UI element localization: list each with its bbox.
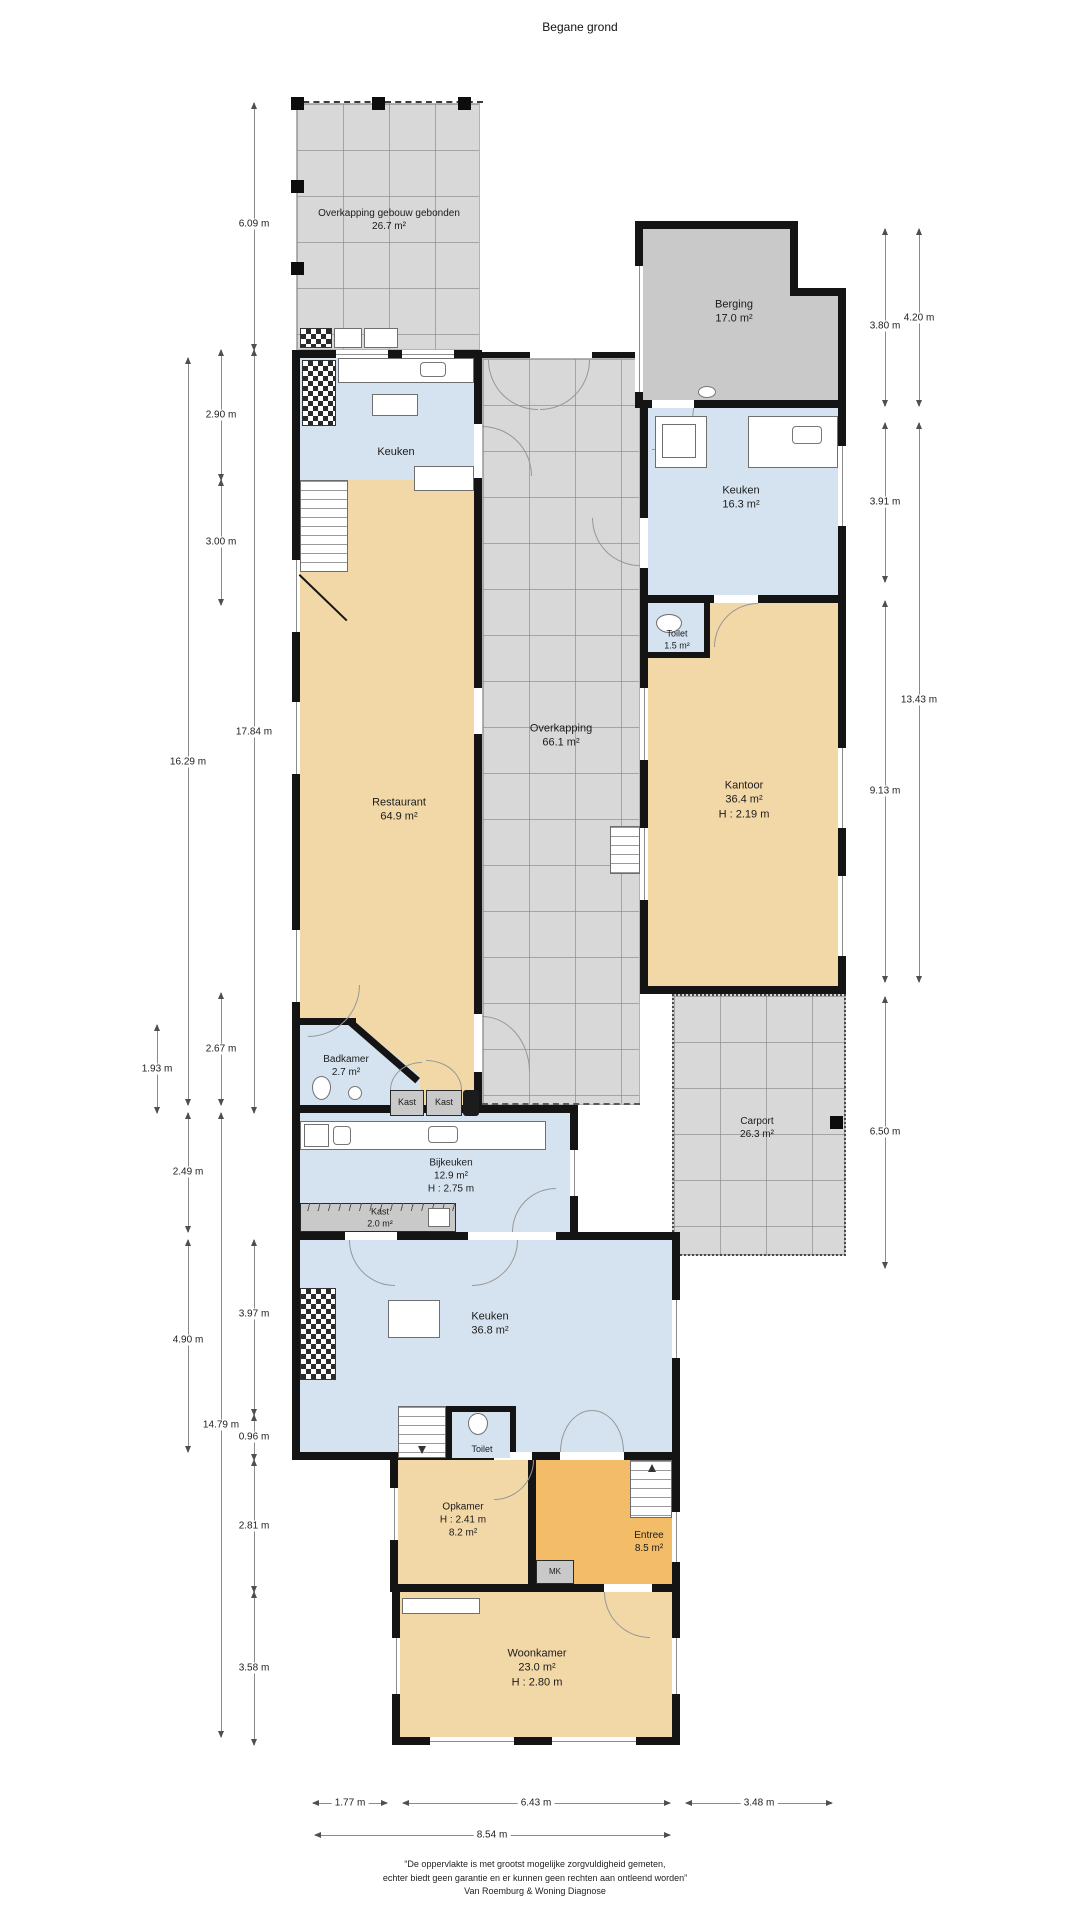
wall (704, 603, 710, 658)
sink-icon (428, 1126, 458, 1143)
dimension-label: 2.49 m (170, 1167, 207, 1178)
window (430, 1737, 514, 1745)
window (292, 560, 300, 632)
dimension-label: 0.96 m (236, 1432, 273, 1443)
dimension-label: 14.79 m (200, 1420, 242, 1431)
appliance (662, 424, 696, 458)
label-restaurant: Restaurant 64.9 m² (372, 796, 426, 825)
stair-arrow-icon (418, 1446, 426, 1454)
label-kast-3: Kast 2.0 m² (367, 1206, 393, 1229)
window (292, 702, 300, 774)
dimension-label: 2.90 m (203, 410, 240, 421)
window (838, 876, 846, 956)
counter (414, 466, 474, 491)
label-mk: MK (549, 1567, 561, 1577)
dimension-label: 1.77 m (332, 1798, 369, 1809)
dimension-label: 3.91 m (867, 497, 904, 508)
dimension-label: 2.81 m (236, 1521, 273, 1532)
scooter-icon (463, 1090, 479, 1116)
label-overkapping: Overkapping 66.1 m² (530, 722, 592, 751)
door-opening (714, 595, 758, 603)
dimension-line (254, 1240, 255, 1415)
label-overkapping-top: Overkapping gebouw gebonden 26.7 m² (318, 207, 460, 233)
window (635, 266, 643, 392)
window (390, 1488, 398, 1540)
dimension-line (188, 1240, 189, 1452)
sink-icon (420, 362, 446, 377)
label-entree: Entree 8.5 m² (634, 1529, 663, 1555)
dimension-label: 4.20 m (901, 313, 938, 324)
label-woonkamer: Woonkamer 23.0 m² H : 2.80 m (507, 1647, 566, 1690)
dimension-label: 6.09 m (236, 219, 273, 230)
window (640, 688, 648, 760)
door-opening (640, 518, 648, 568)
label-badkamer: Badkamer 2.7 m² (323, 1053, 369, 1079)
label-opkamer: Opkamer H : 2.41 m 8.2 m² (440, 1501, 486, 1540)
stair-arrow-icon (648, 1464, 656, 1472)
page-title: Begane grond (542, 20, 617, 34)
window (336, 350, 388, 358)
dimension-label: 3.97 m (236, 1309, 273, 1320)
label-berging: Berging 17.0 m² (715, 298, 753, 327)
disclaimer: “De oppervlakte is met grootst mogelijke… (383, 1858, 687, 1899)
door-opening (474, 688, 482, 734)
post (291, 97, 304, 110)
label-kantoor: Kantoor 36.4 m² H : 2.19 m (719, 779, 770, 822)
window (392, 1638, 400, 1694)
floorplan-page: Begane grond (0, 0, 1080, 1920)
stove-icon (300, 328, 332, 348)
post (830, 1116, 843, 1129)
window (570, 1150, 578, 1196)
kitchen-island (388, 1300, 440, 1338)
wall (592, 352, 640, 358)
window (838, 748, 846, 828)
dimension-label: 13.43 m (898, 695, 940, 706)
door-opening (560, 1452, 624, 1460)
sink-icon (698, 386, 716, 398)
label-kast-1: Kast (398, 1097, 416, 1109)
cabinet (364, 328, 398, 348)
cabinet (334, 328, 362, 348)
sink-icon (792, 426, 822, 444)
label-carport: Carport 26.3 m² (740, 1115, 774, 1141)
dimension-label: 2.67 m (203, 1044, 240, 1055)
laundry-tub-icon (333, 1126, 351, 1145)
dimension-label: 3.48 m (741, 1798, 778, 1809)
door-opening (652, 400, 694, 408)
door-opening (474, 1014, 482, 1072)
wall (790, 221, 798, 296)
window (640, 828, 648, 900)
window (672, 1638, 680, 1694)
wall (648, 652, 710, 658)
staircase (610, 826, 640, 874)
dimension-label: 6.43 m (518, 1798, 555, 1809)
dimension-label: 4.90 m (170, 1335, 207, 1346)
wall (635, 221, 798, 229)
counter (338, 358, 474, 383)
dimension-label: 3.80 m (867, 321, 904, 332)
window (552, 1737, 636, 1745)
label-keuken-rechts: Keuken 16.3 m² (722, 484, 759, 513)
label-toilet-rechts: Toilet 1.5 m² (664, 628, 690, 651)
washer-icon (304, 1124, 329, 1147)
wall (482, 352, 530, 358)
label-kast-2: Kast (435, 1097, 453, 1109)
label-keuken-links: Keuken (377, 445, 414, 459)
dimension-label: 8.54 m (474, 1830, 511, 1841)
wall (838, 288, 846, 408)
window (672, 1512, 680, 1562)
cabinet (402, 1598, 480, 1614)
post (458, 97, 471, 110)
dimension-label: 3.58 m (236, 1663, 273, 1674)
label-keuken-midden: Keuken 36.8 m² (471, 1310, 508, 1339)
dimension-label: 17.84 m (233, 727, 275, 738)
dimension-label: 1.93 m (139, 1064, 176, 1075)
label-toilet-midden: Toilet (471, 1444, 492, 1456)
window (838, 446, 846, 526)
label-bijkeuken: Bijkeuken 12.9 m² H : 2.75 m (428, 1157, 474, 1196)
door-opening (345, 1232, 397, 1240)
staircase (300, 480, 348, 572)
dimension-label: 9.13 m (867, 786, 904, 797)
dimension-label: 16.29 m (167, 757, 209, 768)
sink-icon (348, 1086, 362, 1100)
kitchen-island (372, 394, 418, 416)
post (291, 180, 304, 193)
post (372, 97, 385, 110)
dimension-line (188, 358, 189, 1105)
door-opening (468, 1232, 520, 1240)
dimension-label: 6.50 m (867, 1127, 904, 1138)
window (292, 930, 300, 1002)
dashed-edge (293, 101, 483, 103)
dimension-line (885, 229, 886, 406)
window (402, 350, 454, 358)
window (672, 1300, 680, 1358)
stove-icon (300, 1288, 336, 1380)
dimension-label: 3.00 m (203, 537, 240, 548)
heater-icon (428, 1208, 450, 1227)
door-opening (604, 1584, 652, 1592)
post (291, 262, 304, 275)
door-opening (474, 424, 482, 478)
stove-icon (302, 360, 336, 426)
